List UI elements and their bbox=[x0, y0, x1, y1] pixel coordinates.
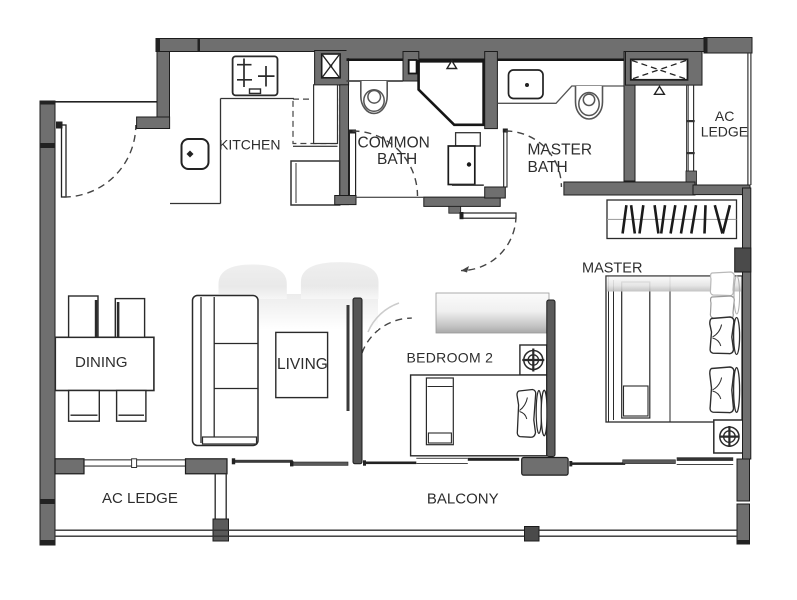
svg-text:KITCHEN: KITCHEN bbox=[219, 137, 280, 153]
svg-text:BATH: BATH bbox=[377, 151, 417, 168]
svg-text:MASTER: MASTER bbox=[582, 261, 642, 277]
svg-text:BATH: BATH bbox=[528, 159, 568, 176]
svg-text:MASTER: MASTER bbox=[528, 142, 593, 159]
svg-text:BALCONY: BALCONY bbox=[427, 491, 499, 508]
svg-text:COMMON: COMMON bbox=[358, 135, 430, 152]
svg-text:BEDROOM 2: BEDROOM 2 bbox=[407, 350, 494, 366]
svg-text:AC LEDGE: AC LEDGE bbox=[102, 490, 178, 507]
svg-text:LIVING: LIVING bbox=[277, 356, 328, 373]
svg-text:LEDGE: LEDGE bbox=[701, 124, 748, 140]
svg-text:DINING: DINING bbox=[75, 354, 128, 371]
svg-text:AC: AC bbox=[715, 108, 734, 124]
